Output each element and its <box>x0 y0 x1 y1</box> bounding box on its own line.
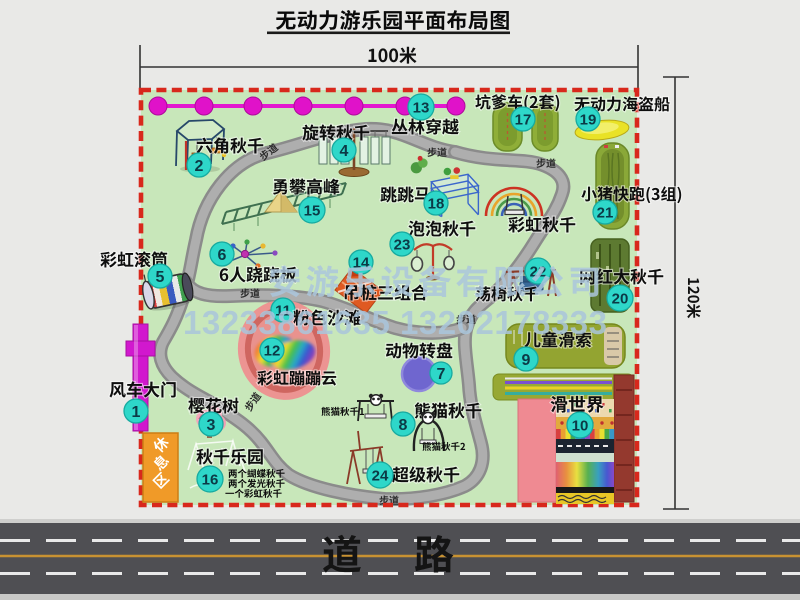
svg-text:17: 17 <box>515 111 532 128</box>
svg-text:20: 20 <box>612 290 629 307</box>
svg-text:18: 18 <box>428 195 445 212</box>
svg-text:5: 5 <box>156 269 165 286</box>
svg-text:7: 7 <box>437 366 446 383</box>
svg-text:3: 3 <box>207 417 216 434</box>
svg-text:16: 16 <box>202 471 219 488</box>
svg-text:21: 21 <box>597 204 614 221</box>
svg-text:13: 13 <box>413 99 430 116</box>
svg-text:10: 10 <box>572 417 589 434</box>
svg-text:4: 4 <box>340 143 349 160</box>
svg-text:13233861635 13202178333: 13233861635 13202178333 <box>183 304 607 341</box>
svg-text:9: 9 <box>522 352 531 369</box>
svg-text:6: 6 <box>218 247 227 264</box>
svg-text:8: 8 <box>399 417 408 434</box>
svg-text:23: 23 <box>394 236 411 253</box>
svg-text:1: 1 <box>132 404 141 421</box>
svg-text:12: 12 <box>264 342 281 359</box>
svg-text:19: 19 <box>580 111 597 128</box>
svg-text:15: 15 <box>304 202 321 219</box>
svg-text:2: 2 <box>195 158 204 175</box>
svg-text:24: 24 <box>372 467 389 484</box>
